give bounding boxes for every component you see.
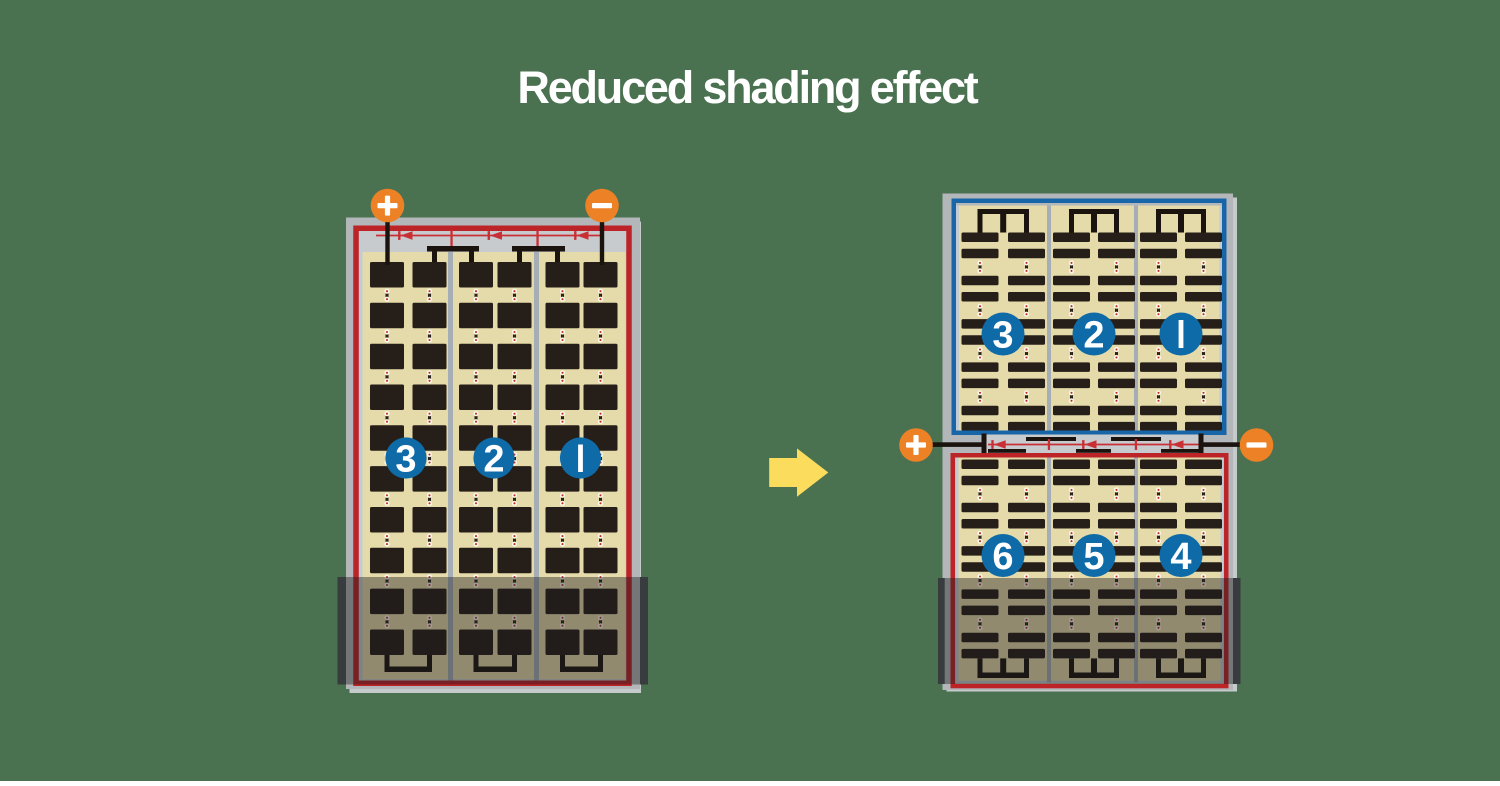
- svg-text:3: 3: [395, 439, 416, 481]
- svg-text:Reduced shading effect: Reduced shading effect: [517, 62, 978, 113]
- svg-text:5: 5: [1083, 536, 1104, 578]
- svg-text:6: 6: [992, 536, 1013, 578]
- svg-text:2: 2: [483, 439, 504, 481]
- svg-text:3: 3: [992, 315, 1013, 357]
- svg-text:2: 2: [1083, 315, 1104, 357]
- svg-text:4: 4: [1170, 536, 1191, 578]
